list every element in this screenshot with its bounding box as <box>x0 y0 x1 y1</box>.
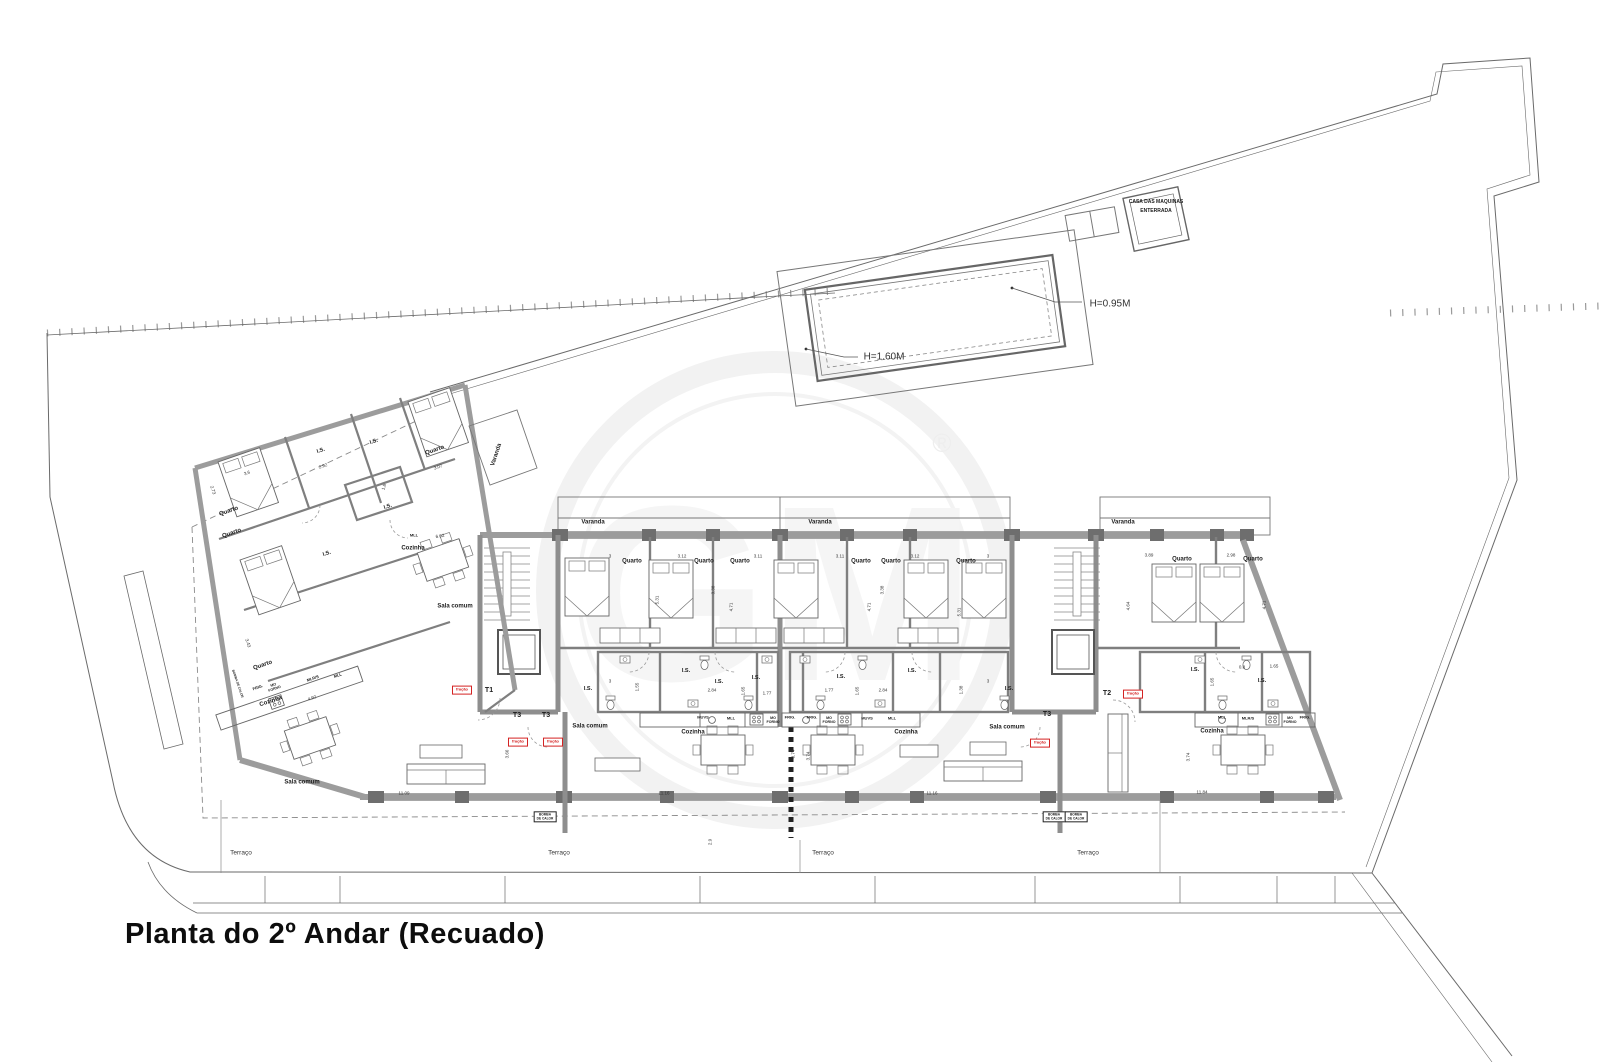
floor-plan-drawing: GM ® <box>0 0 1600 1062</box>
pool <box>777 187 1189 406</box>
watermark-reg: ® <box>932 428 951 458</box>
plan-title: Planta do 2º Andar (Recuado) <box>125 918 545 951</box>
plan-canvas: GM ® <box>0 0 1600 1062</box>
